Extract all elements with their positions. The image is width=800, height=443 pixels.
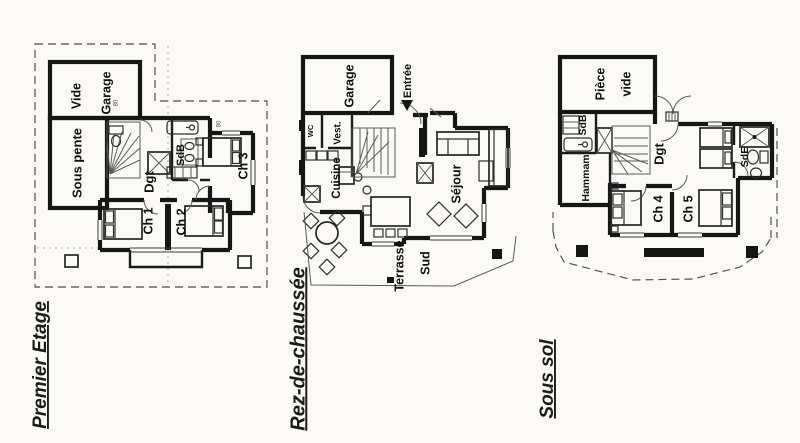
room-label-ch1: Ch 1 [141, 207, 155, 234]
room-label-vest: Vest. [333, 121, 344, 145]
post-icon [238, 256, 251, 268]
planter-icon [304, 186, 320, 202]
dining-table-icon [363, 197, 410, 237]
room-label-garage-1: Garage [99, 71, 113, 114]
shower-icon [740, 127, 769, 147]
plan-sous-sol: Pièce vide SdB Hammam Dgt Ch 4 Ch 5 SdE … [537, 57, 777, 419]
fireplace-icon [417, 163, 433, 183]
room-label-ch3: Ch 3 [236, 152, 250, 179]
armchair-icon [454, 204, 478, 228]
bed-ch1-icon [104, 209, 142, 239]
door-width-annotation: 80 [217, 120, 223, 127]
post-icon [576, 245, 588, 257]
side-table-icon [479, 161, 493, 181]
bathtub-icon [564, 138, 592, 151]
floor-title-rez-de-chaussee: Rez-de-chaussée [287, 267, 309, 430]
plan-rez-de-chaussee: Garage Entrée WC Vest. Cuisine Séjour Te… [287, 57, 516, 431]
post-icon [65, 255, 78, 267]
post-icon [746, 246, 758, 258]
sofa-icon [489, 129, 508, 186]
armchair-icon [427, 202, 451, 226]
room-label-sdb-2: SdB [577, 114, 589, 135]
radiator-icon [666, 112, 678, 121]
bed-ch4-icon [611, 183, 641, 232]
bed-ch3-icon [196, 138, 241, 166]
room-label-dgt-1: Dgt [141, 171, 156, 193]
stairs-icon [612, 126, 650, 174]
room-label-terrasse: Terrasse [392, 240, 406, 291]
stairs-icon [352, 128, 395, 177]
terrace-table-icon [303, 210, 347, 275]
room-label-dgt-2: Dgt [651, 143, 666, 165]
wardrobe-icon [700, 149, 732, 168]
entree-arrow-icon [401, 100, 413, 111]
room-label-hammam: Hammam [580, 154, 592, 201]
shaft-icon [597, 128, 612, 153]
room-label-ch4: Ch 4 [651, 195, 665, 222]
room-label-piece-vide-2: vide [619, 71, 633, 96]
plan-premier-etage: Vide Garage Sous pente SdB Dgt Ch 1 Ch 2… [30, 44, 267, 429]
room-label-entree: Entrée [402, 64, 414, 98]
floor-title-premier-etage: Premier Etage [30, 301, 51, 429]
sofa-icon [437, 132, 479, 155]
floorplans-canvas: Vide Garage Sous pente SdB Dgt Ch 1 Ch 2… [0, 0, 800, 443]
room-label-sde: SdE [739, 147, 751, 167]
bed-ch5-icon [699, 190, 732, 226]
floor-title-sous-sol: Sous sol [537, 339, 558, 419]
room-label-wc: WC [306, 124, 315, 137]
room-label-ch2: Ch 2 [174, 208, 188, 235]
room-label-ch5: Ch 5 [681, 195, 695, 222]
room-label-sejour: Séjour [449, 164, 463, 203]
room-label-piece-vide-1: Pièce [593, 68, 607, 101]
room-label-vide: Vide [69, 83, 83, 109]
door-width-annotation: 80 [114, 99, 120, 106]
wardrobe-icon [700, 128, 732, 147]
room-label-sdb-1: SdB [175, 144, 187, 166]
scanned-floorplan-page: Vide Garage Sous pente SdB Dgt Ch 1 Ch 2… [0, 0, 800, 443]
room-label-sud: Sud [418, 251, 432, 275]
room-label-cuisine: Cuisine [331, 157, 343, 199]
window-well-icon [644, 248, 704, 257]
room-label-sous-pente: Sous pente [69, 128, 84, 198]
bed-ch2-icon [185, 206, 223, 236]
room-label-garage-2: Garage [342, 64, 356, 107]
post-icon [492, 249, 502, 259]
